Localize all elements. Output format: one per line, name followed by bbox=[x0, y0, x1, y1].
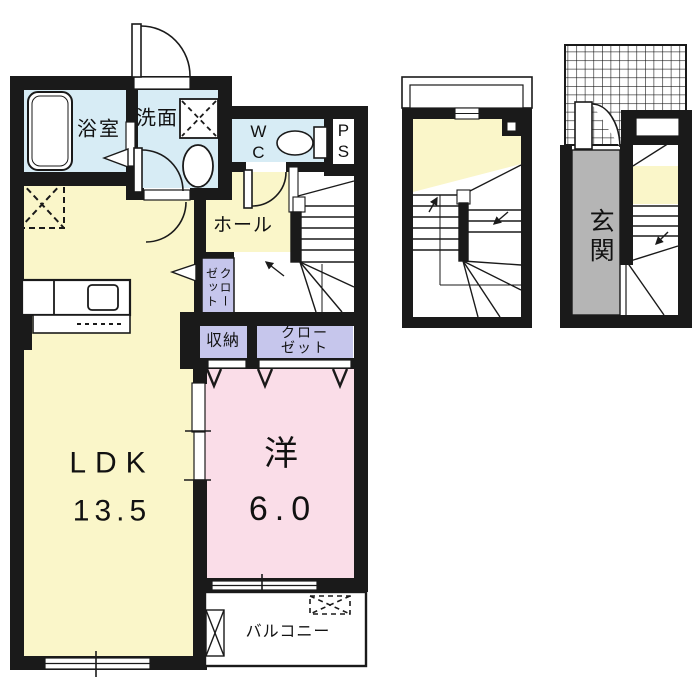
closet-sliding-doors bbox=[208, 360, 351, 368]
pipe-space-label: PS bbox=[334, 121, 352, 163]
pipe-column-icon bbox=[507, 122, 516, 131]
wall-ps-bottom bbox=[324, 164, 368, 176]
ldk-size-label: 13.5 bbox=[73, 495, 151, 527]
sub-staircase-icon bbox=[413, 165, 521, 317]
bath-label: 浴室 bbox=[77, 120, 121, 141]
stair-up-arrow-icon bbox=[429, 198, 437, 212]
hall-closet-label-col-right: クロー bbox=[219, 267, 232, 309]
stair-down-arrow-icon bbox=[656, 232, 668, 244]
storage-label: 収納 bbox=[206, 334, 240, 351]
washing-machine-space-icon bbox=[180, 99, 218, 138]
entrance-stair-landing-floor bbox=[633, 166, 678, 204]
kitchen-counter-icon bbox=[22, 280, 130, 333]
wall-pillar-kitchen bbox=[10, 315, 32, 350]
wall-hall-west bbox=[194, 198, 206, 252]
bedroom-closet-label: クロー ゼット bbox=[281, 326, 329, 357]
hall-label: ホール bbox=[213, 216, 273, 236]
sink-icon bbox=[88, 285, 118, 310]
wall-right bbox=[354, 106, 368, 592]
bay-window-icon bbox=[402, 77, 532, 108]
washroom-door-opening bbox=[144, 190, 190, 200]
wall-top-right bbox=[232, 106, 368, 119]
western-room-label: 洋 bbox=[264, 437, 298, 473]
stair-up-arrow-icon bbox=[266, 262, 284, 276]
wc-label: WC bbox=[249, 122, 267, 164]
bedroom-closet-label-line2: ゼット bbox=[281, 341, 329, 356]
entrance-plan bbox=[560, 45, 692, 328]
stair-down-arrow-icon bbox=[494, 212, 508, 224]
wall-storage-closet bbox=[247, 326, 257, 358]
wash-basin-icon bbox=[183, 145, 213, 187]
stair-plan bbox=[402, 77, 532, 328]
exterior-door-swing-icon bbox=[132, 24, 190, 77]
hall-closet-label-col-left: ゼット bbox=[205, 267, 218, 309]
ldk-floor-upper-strip bbox=[24, 186, 126, 202]
bedroom-closet-label-line1: クロー bbox=[281, 326, 329, 341]
hall-closet-label: ゼット クロー bbox=[205, 267, 231, 309]
wall-top bbox=[10, 76, 232, 90]
floorplan-image: 浴室 洗面 WC PS ホール ゼット クロー 収納 クロー ゼット LDK 1… bbox=[0, 0, 700, 700]
ldk-floor bbox=[24, 200, 194, 658]
bathtub-icon bbox=[28, 92, 72, 170]
wall-ldk-western bbox=[193, 480, 207, 578]
ldk-label: LDK bbox=[69, 447, 154, 479]
exterior-door-opening bbox=[134, 77, 190, 89]
wall-under-stairs bbox=[180, 312, 368, 326]
western-room-size-label: 6.0 bbox=[249, 492, 317, 528]
entrance-staircase-icon bbox=[626, 138, 678, 315]
entrance-label: 玄関 bbox=[587, 208, 613, 266]
wall-washroom-right bbox=[218, 76, 232, 200]
washroom-label: 洗面 bbox=[136, 109, 178, 130]
stair-plan-window-icon bbox=[455, 108, 479, 119]
floorplan-drawing bbox=[0, 0, 700, 700]
entrance-plan-window-icon bbox=[636, 118, 679, 136]
balcony-partition-icon bbox=[206, 610, 224, 656]
balcony-label: バルコニー bbox=[246, 625, 331, 642]
wall-left bbox=[10, 76, 24, 670]
wall-bath-bottom bbox=[10, 172, 138, 186]
